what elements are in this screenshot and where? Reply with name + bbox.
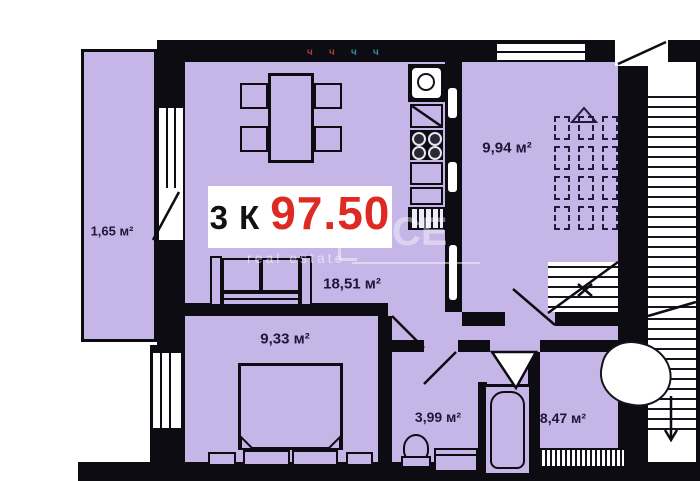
wall-hall-south-b [458, 340, 490, 352]
kitchen-sink-bowl-icon [417, 73, 435, 91]
washer [434, 448, 478, 472]
kitchen-counter [410, 104, 443, 128]
sofa-armrest-left [210, 256, 222, 306]
stair-flight-upper [648, 96, 696, 308]
kitchen-fridge [408, 207, 445, 230]
vent-mark-3 [449, 245, 457, 300]
window-bedroom-line1 [160, 353, 162, 428]
wall-mark-2: ч [329, 48, 335, 58]
window-bedroom-line2 [169, 353, 171, 428]
sofa-armrest-right [300, 256, 312, 306]
watermark-bracket [338, 228, 357, 261]
wall-room994-bottom-b [555, 312, 628, 326]
wall-room994-bottom-a [462, 312, 505, 326]
washer-line [436, 454, 476, 456]
area-label-hall847: 8,47 м² [540, 410, 586, 426]
nightstand-right [346, 452, 373, 466]
chair [314, 126, 342, 152]
nightstand-left [208, 452, 236, 466]
badge-rooms-count: 3 К [210, 199, 261, 237]
bed-footer-right [292, 450, 338, 466]
vent-mark-1 [448, 88, 457, 118]
dining-table [268, 73, 314, 163]
bed-footer-left [243, 450, 290, 466]
bed [238, 363, 343, 450]
door-balcony-opening [159, 188, 183, 240]
window-balcony-line2 [174, 108, 176, 188]
chair [314, 83, 342, 109]
badge-total-area: 97.50 [270, 186, 390, 240]
watermark-line [352, 262, 480, 264]
window-bedroom [153, 353, 181, 428]
sofa-cushion-right [261, 258, 300, 292]
kitchen-stove [410, 130, 443, 160]
hatched-corner-box [615, 40, 668, 66]
wall-right-edge [696, 40, 700, 481]
room-balcony [81, 49, 157, 342]
wall-mark-1: ч [307, 48, 313, 58]
window-top-line [497, 51, 585, 53]
vent-mark-2 [448, 162, 457, 192]
kitchen-cabinet-2 [410, 187, 443, 205]
wall-mark-4: ч [373, 48, 379, 58]
area-label-bedroom: 9,33 м² [260, 331, 309, 348]
wall-bedroom-right [378, 316, 392, 465]
window-balcony [159, 108, 183, 188]
bathtub-inner [490, 391, 525, 469]
area-label-balcony: 1,65 м² [91, 224, 134, 239]
kitchen-cabinet-1 [410, 162, 443, 185]
area-label-room994: 9,94 м² [482, 140, 531, 157]
wall-mark-3: ч [351, 48, 357, 58]
wardrobe-dashed-symbol [554, 116, 618, 230]
sofa-cushion-left [222, 258, 261, 292]
radiator-hatch [538, 448, 626, 468]
area-label-bathroom: 3,99 м² [415, 409, 461, 425]
floor-plan: 1,65 м² 18,51 м² 9,94 м² 9,33 м² 3,99 м²… [0, 0, 700, 481]
wall-hall-south-a [392, 340, 424, 352]
sofa-backrest-line [224, 298, 298, 300]
internal-stairs-treads [548, 266, 618, 312]
apartment-badge: 3 К 97.50 [208, 186, 392, 248]
toilet-tank [401, 456, 431, 468]
area-label-living: 18,51 м² [323, 276, 381, 293]
window-balcony-line1 [166, 108, 168, 188]
chair [240, 83, 268, 109]
chair [240, 126, 268, 152]
